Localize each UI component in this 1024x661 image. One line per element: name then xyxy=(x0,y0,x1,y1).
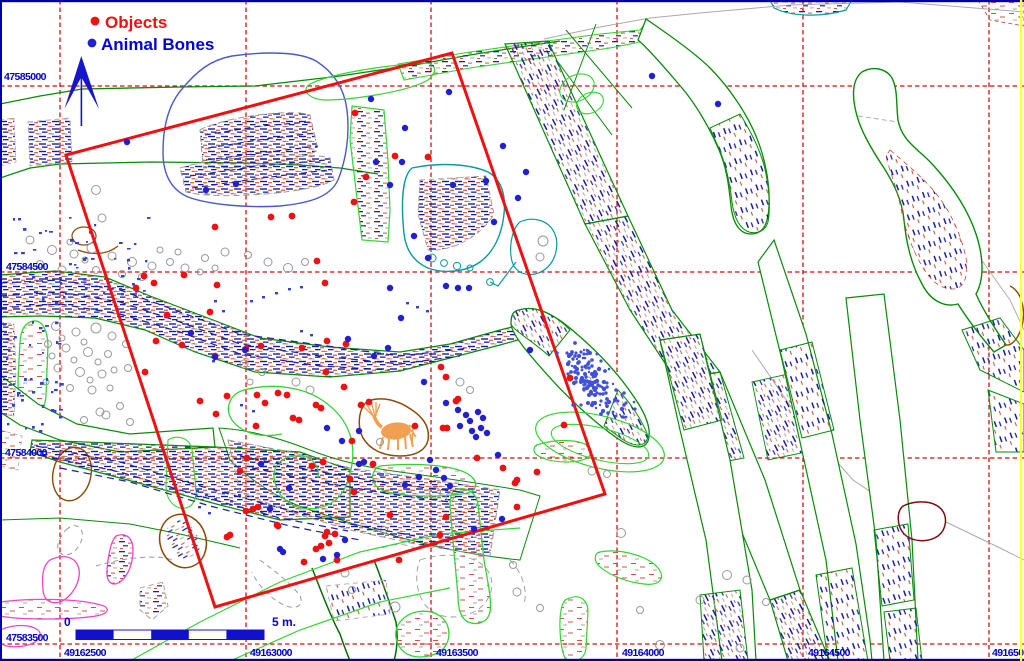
svg-text:49162500: 49162500 xyxy=(64,647,107,659)
svg-text:5 m.: 5 m. xyxy=(272,615,296,629)
svg-text:49163500: 49163500 xyxy=(436,647,479,659)
svg-text:49164000: 49164000 xyxy=(622,647,665,659)
svg-text:49164500: 49164500 xyxy=(808,647,851,659)
svg-text:47584000: 47584000 xyxy=(5,447,48,459)
svg-text:47585000: 47585000 xyxy=(4,71,47,83)
svg-text:0: 0 xyxy=(64,615,71,629)
svg-text:Animal Bones: Animal Bones xyxy=(101,35,214,54)
svg-text:47583500: 47583500 xyxy=(6,632,49,644)
svg-text:47584500: 47584500 xyxy=(6,261,49,273)
svg-text:Objects: Objects xyxy=(105,13,167,32)
svg-text:49165000: 49165000 xyxy=(992,647,1024,659)
svg-text:49163000: 49163000 xyxy=(250,647,293,659)
